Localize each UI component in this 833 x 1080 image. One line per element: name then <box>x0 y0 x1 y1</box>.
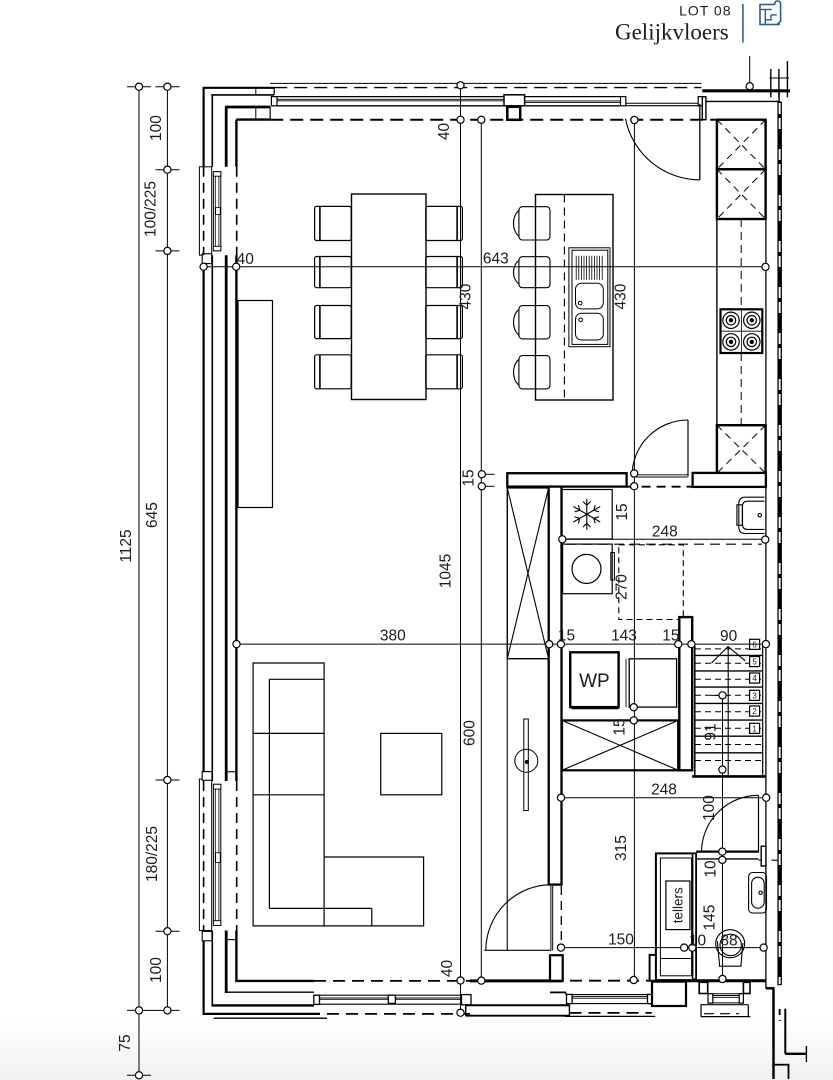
svg-text:430: 430 <box>458 283 475 309</box>
svg-text:15: 15 <box>611 718 628 735</box>
svg-text:15: 15 <box>558 628 575 645</box>
svg-text:tellers: tellers <box>670 887 685 923</box>
svg-text:315: 315 <box>613 835 630 861</box>
svg-text:150: 150 <box>608 932 634 949</box>
svg-text:100: 100 <box>148 957 165 983</box>
svg-text:88: 88 <box>720 933 737 950</box>
svg-text:4: 4 <box>752 674 757 683</box>
svg-text:180/225: 180/225 <box>144 826 161 882</box>
svg-text:10: 10 <box>702 860 719 878</box>
svg-text:248: 248 <box>651 782 677 799</box>
svg-text:40: 40 <box>439 960 456 978</box>
svg-text:15: 15 <box>662 628 679 645</box>
svg-text:75: 75 <box>117 1034 134 1051</box>
svg-text:430: 430 <box>613 283 630 309</box>
svg-text:143: 143 <box>611 628 637 645</box>
svg-text:1045: 1045 <box>438 554 455 588</box>
svg-text:1: 1 <box>752 724 757 733</box>
svg-text:10: 10 <box>689 933 707 950</box>
svg-text:91: 91 <box>703 723 720 740</box>
svg-text:5: 5 <box>752 658 757 667</box>
svg-text:6: 6 <box>752 640 757 649</box>
svg-text:100: 100 <box>148 115 165 141</box>
svg-text:WP: WP <box>579 671 610 692</box>
svg-text:LOT 08: LOT 08 <box>679 3 731 19</box>
svg-text:380: 380 <box>380 628 406 645</box>
svg-text:270: 270 <box>613 574 630 600</box>
svg-text:15: 15 <box>460 469 477 486</box>
svg-text:645: 645 <box>144 502 161 528</box>
svg-text:100: 100 <box>701 795 718 821</box>
svg-text:3: 3 <box>752 691 757 700</box>
svg-text:40: 40 <box>436 123 453 141</box>
svg-text:Gelijkvloers: Gelijkvloers <box>615 20 729 45</box>
svg-text:643: 643 <box>483 251 509 268</box>
svg-text:15: 15 <box>614 503 631 520</box>
svg-text:248: 248 <box>652 524 678 541</box>
svg-text:600: 600 <box>461 720 478 746</box>
svg-text:2: 2 <box>752 707 757 716</box>
svg-text:90: 90 <box>720 628 738 645</box>
svg-text:1125: 1125 <box>118 529 135 562</box>
svg-text:100/225: 100/225 <box>142 181 159 237</box>
svg-text:40: 40 <box>237 251 255 268</box>
svg-text:145: 145 <box>702 905 719 931</box>
